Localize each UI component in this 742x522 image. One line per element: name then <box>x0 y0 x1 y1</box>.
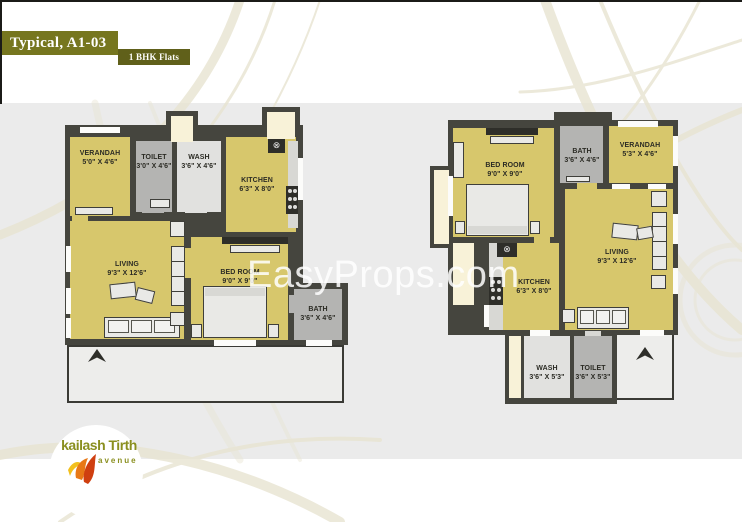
duct <box>434 170 449 244</box>
room-label-wash: WASH3'6" X 5'3" <box>524 364 570 382</box>
room-label-toilet: TOILET3'6" X 5'3" <box>572 364 614 382</box>
wardrobe <box>453 142 464 178</box>
table-icon <box>611 223 638 241</box>
flame-icon <box>62 452 98 490</box>
door-opening <box>530 330 550 336</box>
wall-block <box>554 112 612 124</box>
door-opening <box>484 305 489 327</box>
door-opening <box>577 183 597 190</box>
door-opening <box>534 234 550 244</box>
cabinet <box>562 309 575 323</box>
room-label-verandah: VERANDAH5'3" X 4'6" <box>608 141 672 159</box>
window <box>618 121 658 127</box>
room-label-living: LIVING9'3" X 12'6" <box>585 248 649 266</box>
window <box>673 214 678 244</box>
north-arrow-icon <box>636 347 654 361</box>
window <box>640 330 664 336</box>
cabinet <box>651 275 666 289</box>
window <box>448 176 453 216</box>
room-label-bath: BATH3'6" X 4'6" <box>559 147 605 165</box>
open-terrace <box>614 332 674 400</box>
bed-pillow <box>468 226 527 234</box>
window <box>648 184 666 189</box>
watermark: EasyProps.com <box>247 254 520 297</box>
logo-tagline: avenue <box>98 456 138 465</box>
duct <box>509 336 521 398</box>
cabinet <box>651 191 667 207</box>
door-opening <box>585 331 601 336</box>
window <box>673 268 678 294</box>
nightstand <box>455 221 465 234</box>
window <box>612 184 630 189</box>
nightstand <box>530 221 540 234</box>
window <box>673 136 678 166</box>
bath-fixture <box>566 176 590 182</box>
floor-plan-page: Typical, A1-03 1 BHK Flats <box>0 0 742 522</box>
shelf <box>490 136 534 144</box>
room-label-bedroom: BED ROOM9'0" X 9'0" <box>470 161 540 179</box>
logo-name: kailash Tirth <box>57 437 141 453</box>
wardrobe <box>486 128 538 135</box>
